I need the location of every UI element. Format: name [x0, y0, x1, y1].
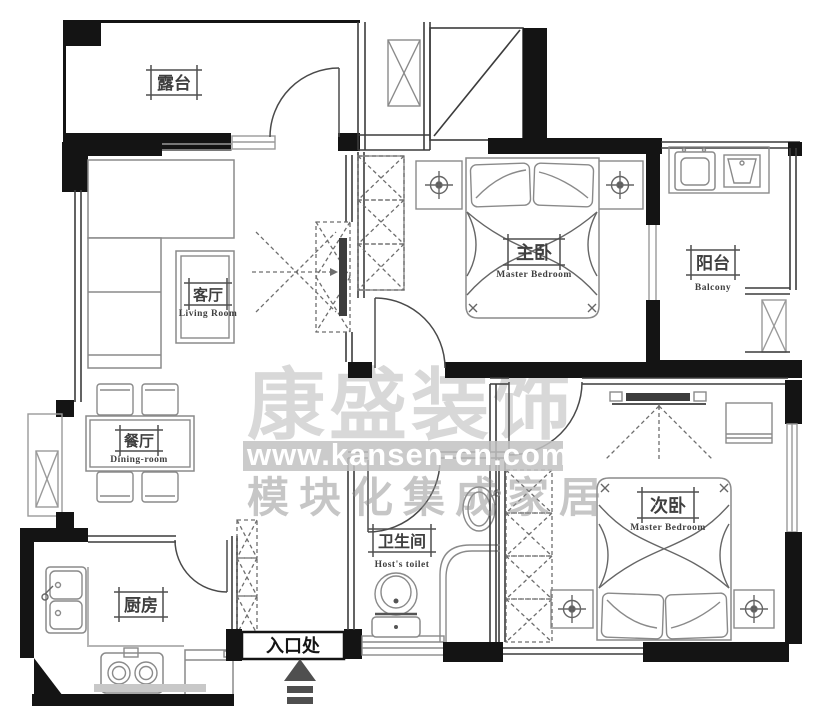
kitchen-bottom-wall	[32, 694, 234, 706]
dining-chair	[142, 472, 178, 502]
bathroom-label-cn: 卫生间	[378, 532, 426, 551]
kitchen: 厨房	[20, 528, 237, 706]
dining-chair	[97, 472, 133, 502]
entrance: 入口处	[226, 629, 444, 704]
watermark-url: www.kansen-cn.com	[243, 437, 570, 472]
entrance-label: 入口处	[266, 635, 321, 656]
tv-viewing-lines	[252, 232, 338, 312]
room-label-terrace: 露台	[146, 65, 202, 100]
terrace-window	[232, 136, 275, 149]
duct-shaft	[430, 28, 547, 140]
second-bedroom-window	[787, 424, 797, 532]
watermark-slogan-text: 模块化集成家居	[247, 474, 611, 521]
ceiling-lamp-icon	[558, 595, 586, 623]
room-label-balcony: 阳台 Balcony	[686, 245, 740, 293]
second-label-cn: 次卧	[650, 495, 686, 516]
living-label-en: Living Room	[179, 309, 238, 319]
master-label-cn: 主卧	[516, 242, 552, 263]
balcony-label-en: Balcony	[695, 283, 731, 293]
chamfer-wall	[34, 658, 66, 700]
dining-label-cn: 餐厅	[124, 432, 154, 450]
master-balcony-window	[649, 225, 656, 300]
balcony-window	[762, 300, 786, 352]
top-closet	[358, 22, 430, 150]
master-bed	[466, 158, 599, 318]
second-label-en: Master Bedroom	[630, 523, 706, 533]
arrow-icon	[330, 268, 338, 276]
terrace-label-cn: 露台	[157, 73, 191, 93]
dining-label-en: Dining-room	[110, 455, 168, 465]
master-label-en: Master Bedroom	[496, 270, 572, 280]
hallway	[237, 520, 257, 634]
kitchen-label-cn: 厨房	[124, 595, 158, 615]
laundry-sink-icon	[724, 155, 760, 187]
dining-chair	[142, 384, 178, 415]
tv-cabinet	[316, 222, 350, 332]
terrace-door	[270, 68, 339, 137]
master-door	[375, 298, 445, 368]
hall-cabinet	[237, 520, 257, 634]
master-wardrobe	[358, 156, 404, 290]
living-label-cn: 客厅	[192, 286, 223, 304]
balcony-bottom-wall	[647, 360, 802, 378]
floor-plan-canvas: 康盛装饰	[0, 0, 815, 721]
toilet-icon	[372, 573, 420, 637]
master-bedroom: 主卧 Master Bedroom	[348, 138, 662, 378]
room-label-kitchen: 厨房	[114, 587, 168, 622]
watermark-slogan: 模块化集成家居	[247, 474, 611, 521]
kitchen-sink-icon	[42, 567, 86, 633]
living-top-wall	[88, 142, 162, 156]
entrance-arrow-icon	[284, 659, 316, 704]
master-top-wall	[488, 138, 662, 154]
floor-plan: 康盛装饰	[0, 0, 815, 721]
desk	[726, 403, 772, 443]
ceiling-lamp-icon	[425, 171, 453, 199]
washing-machine-icon	[675, 149, 715, 191]
dining-chair	[97, 384, 133, 415]
tv-icon	[626, 393, 690, 401]
shower-screen	[440, 545, 500, 642]
bathroom-label-en: Host's toilet	[375, 560, 430, 570]
watermark-url-text: www.kansen-cn.com	[246, 437, 570, 472]
balcony: 阳台 Balcony	[647, 142, 802, 378]
closet-wardrobe	[388, 40, 420, 106]
second-bottom-wall	[643, 642, 789, 662]
tv-icon	[339, 238, 347, 316]
ceiling-lamp-icon	[606, 171, 634, 199]
master-bottom-wall	[445, 362, 662, 378]
bay-window	[28, 414, 62, 516]
entrance-steps	[362, 636, 444, 655]
threshold-strip	[94, 684, 206, 692]
tv-viewing-lines	[605, 406, 713, 460]
balcony-label-cn: 阳台	[696, 253, 730, 273]
kitchen-door	[175, 540, 227, 592]
dining-area: 餐厅 Dining-room	[28, 384, 194, 530]
ceiling-lamp-icon	[740, 595, 768, 623]
terrace	[63, 20, 360, 151]
